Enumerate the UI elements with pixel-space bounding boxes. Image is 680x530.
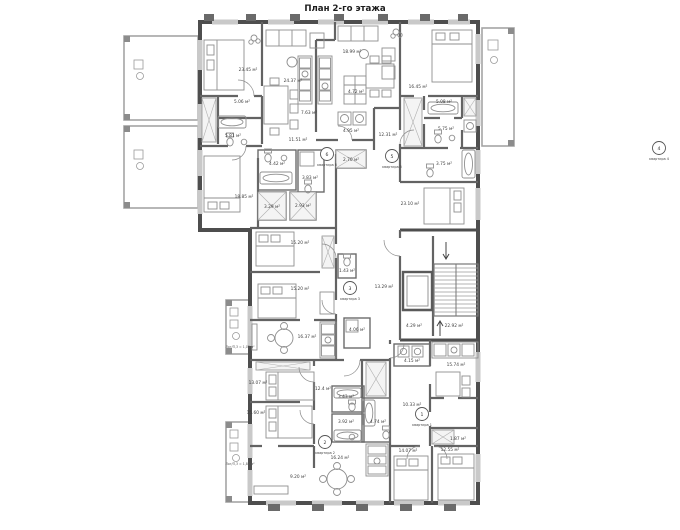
room-area-apt5-living: 18.99 м² (343, 49, 362, 55)
apartment-badge-3: 3 квартира 3 (340, 282, 360, 302)
room-area-apt2-hall: 12.4 м² (315, 386, 331, 392)
stairwell (403, 242, 478, 336)
room-area-apt4-bathroom: 5.75 м² (438, 126, 454, 132)
apartment-number: 2 (324, 440, 327, 446)
plants (249, 29, 402, 44)
room-area-stairwell: 22.92 м² (445, 323, 464, 329)
apartment-label: квартира 3 (340, 297, 360, 301)
apartment-number: 5 (391, 154, 394, 160)
apartment-label: квартира 1 (412, 423, 432, 427)
room-area-apt1-pantry: 4.15 м² (404, 358, 420, 364)
room-area-apt5-laundry: 4.95 м² (343, 128, 359, 134)
room-area-apt2-bedroom2: 15.60 м² (247, 410, 266, 416)
apartment-label: квартира 4 (649, 157, 669, 161)
room-area-apt5-bathroom: 3.75 м² (436, 161, 452, 167)
apartment-label: квартира 6 (317, 163, 337, 167)
apartment-badge-4: 4 квартира 4 (649, 142, 669, 162)
room-area-apt2-bathroom2: 3.92 м² (338, 419, 354, 425)
balcony-note-apt2: Лог/П,3 = 1,82 м² (225, 462, 255, 466)
room-area-apt3-bathroom: 4.06 м² (349, 327, 365, 333)
room-area-apt6-living: 24.37 м² (284, 78, 303, 84)
room-area-apt2-bathroom1: 3.43 м² (338, 394, 354, 400)
room-area-apt6-bedroom1: 23.45 м² (239, 67, 258, 73)
room-area-apt6-wc: 3.83 м² (302, 175, 318, 181)
room-area-apt3-bedroom2: 15.20 м² (291, 286, 310, 292)
apartment-number: 4 (658, 146, 661, 152)
room-area-apt1-bathroom: 4.74 м² (370, 419, 386, 425)
room-area-apt1-kitchen: 15.74 м² (447, 362, 466, 368)
room-area-apt6-wardrobe: 5.06 м² (234, 99, 250, 105)
room-area-corridor: 13.29 м² (375, 284, 394, 290)
stair-direction-arrows (437, 242, 449, 336)
apartment-label: квартира 5 (382, 165, 402, 169)
room-area-apt1-bedroom2: 12.55 м² (441, 447, 460, 453)
room-area-apt6-bedroom2: 18.85 м² (235, 194, 254, 200)
room-area-apt1-bedroom1: 14.07 м² (399, 448, 418, 454)
room-area-apt6-hall: 11.51 м² (289, 137, 308, 143)
room-area-apt6-storage2: 2.93 м² (295, 203, 311, 209)
elevator (403, 272, 432, 310)
balcony-note-apt3: Лог/П,3 = 1,03 м² (225, 345, 255, 349)
room-area-apt1-hall: 10.33 м² (403, 402, 422, 408)
plan-title: План 2-го этажа (304, 4, 386, 14)
room-area-apt5-bedroom: 23.10 м² (401, 201, 420, 207)
room-area-apt5-hall: 12.31 м² (379, 132, 398, 138)
room-area-apt2-bedroom1: 13.07 м² (249, 380, 268, 386)
apartment-number: 1 (421, 412, 424, 418)
room-area-apt5-pantry: 4.72 м² (348, 89, 364, 95)
apartment-number: 3 (349, 286, 352, 292)
room-area-apt5-storage: 2.70 м² (343, 157, 359, 163)
floor-plan: План 2-го этажа (0, 0, 680, 530)
room-area-apt2-living: 9.20 м² (290, 474, 306, 480)
room-area-lift-lobby: 4.29 м² (406, 323, 422, 329)
room-area-apt3-living: 16.37 м² (298, 334, 317, 340)
apartment-number: 6 (326, 152, 329, 158)
room-area-apt1-wardrobe: 1.87 м² (450, 436, 466, 442)
stair-flights (434, 264, 478, 316)
room-area-apt3-wc: 1.43 м² (339, 268, 355, 274)
room-area-apt6-storage1: 3.29 м² (264, 204, 280, 210)
room-area-apt6-bathroom2: 4.42 м² (269, 161, 285, 167)
apartment-label: квартира 2 (315, 451, 335, 455)
room-area-apt2-kitchen: 16.24 м² (331, 455, 350, 461)
apartment-badges: 6 квартира 6 5 квартира 5 4 квартира 4 3… (315, 142, 669, 456)
room-area-apt6-bathroom: 5.81 м² (225, 133, 241, 139)
room-area-apt4-bedroom: 16.45 м² (409, 84, 428, 90)
room-area-apt3-bedroom1: 15.20 м² (291, 240, 310, 246)
room-area-apt4-hall: 5.08 м² (436, 99, 452, 105)
floor-plan-page: План 2-го этажа (0, 0, 680, 530)
room-area-apt6-kitchen: 7.63 м² (301, 110, 317, 116)
